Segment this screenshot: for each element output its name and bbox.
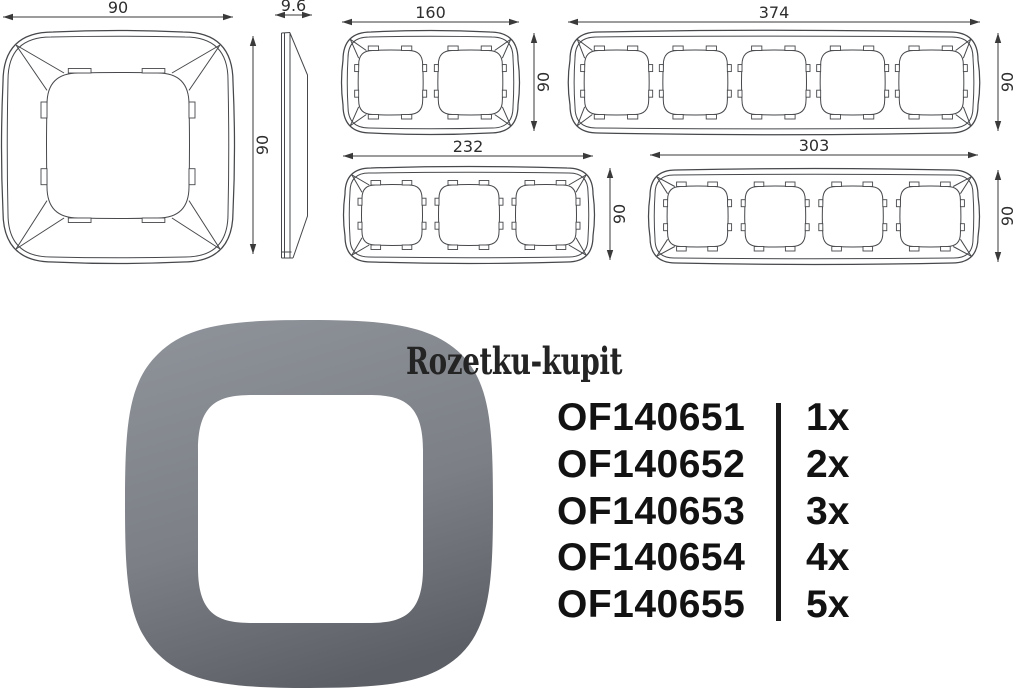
- list-divider-line: [776, 403, 781, 621]
- product-code: OF140654: [557, 536, 779, 580]
- drawing-five-gang: [568, 30, 980, 135]
- product-row: OF140652 2x: [557, 442, 887, 489]
- dim-4gang-height-label: 90: [998, 206, 1017, 226]
- product-row: OF140651 1x: [557, 395, 887, 442]
- dim-2gang-height: 90: [531, 33, 553, 131]
- dim-front-height: 90: [250, 36, 272, 254]
- product-code: OF140651: [557, 396, 779, 440]
- drawing-three-gang: [344, 167, 595, 264]
- dim-3gang-height: 90: [607, 168, 629, 260]
- product-code: OF140655: [557, 583, 779, 627]
- drawing-front-view: [2, 31, 235, 264]
- dim-4gang-width-label: 303: [799, 136, 830, 155]
- dim-5gang-width-label: 374: [759, 3, 790, 22]
- dim-front-width: 90: [3, 0, 233, 20]
- drawing-side-view: [282, 33, 308, 259]
- dim-front-height-label: 90: [253, 135, 272, 155]
- dim-2gang-width-label: 160: [415, 3, 446, 22]
- product-qty: 3x: [806, 490, 849, 534]
- dim-4gang-height: 90: [995, 170, 1017, 262]
- dim-3gang-height-label: 90: [610, 204, 629, 224]
- dim-5gang-height: 90: [995, 33, 1017, 131]
- dim-front-width-label: 90: [108, 0, 128, 17]
- dim-5gang-width: 374: [568, 3, 980, 25]
- product-row: OF140655 5x: [557, 582, 887, 629]
- dim-side-thickness-label: 9.6: [281, 0, 306, 15]
- product-qty: 2x: [806, 443, 849, 487]
- drawing-two-gang: [342, 31, 520, 135]
- dim-3gang-width: 232: [343, 137, 593, 159]
- technical-drawings: 90909.616090374902329030390: [0, 0, 1017, 300]
- product-qty: 5x: [806, 583, 849, 627]
- dim-side-thickness: 9.6: [275, 0, 312, 18]
- dim-5gang-height-label: 90: [998, 72, 1017, 92]
- product-list: OF140651 1x OF140652 2x OF140653 3x OF14…: [557, 395, 887, 631]
- product-code: OF140653: [557, 490, 779, 534]
- product-code: OF140652: [557, 443, 779, 487]
- product-row: OF140654 4x: [557, 535, 887, 582]
- dim-3gang-width-label: 232: [453, 137, 484, 156]
- watermark-text: Rozetku-kupit: [406, 342, 622, 380]
- dim-2gang-height-label: 90: [534, 72, 553, 92]
- dim-2gang-width: 160: [342, 3, 519, 25]
- product-qty: 1x: [806, 396, 849, 440]
- product-qty: 4x: [806, 536, 849, 580]
- product-row: OF140653 3x: [557, 488, 887, 535]
- product-sheet: 90909.616090374902329030390 Rozetku-kupi…: [0, 0, 1017, 700]
- drawing-four-gang: [649, 169, 980, 265]
- dim-4gang-width: 303: [650, 136, 978, 158]
